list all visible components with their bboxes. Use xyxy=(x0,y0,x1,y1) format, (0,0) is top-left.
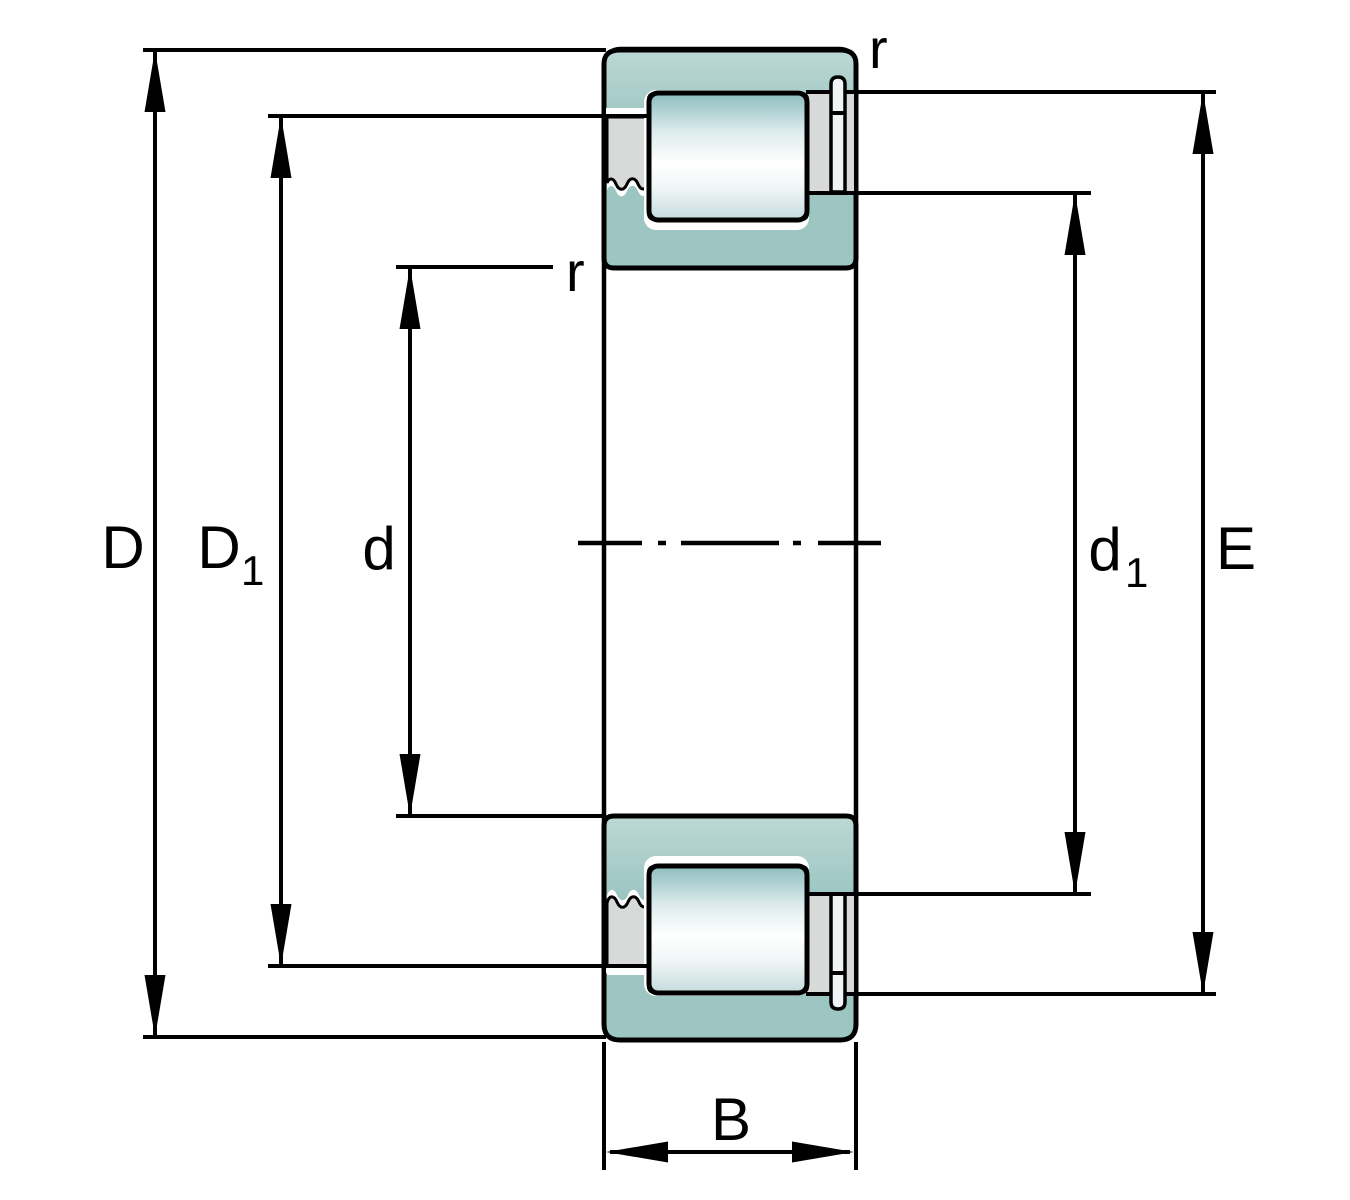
arrowhead-B-left xyxy=(606,1142,668,1163)
arrowhead-d-up xyxy=(400,267,421,329)
arrowhead-E-down xyxy=(1193,932,1214,994)
arrowhead-D-down xyxy=(145,975,166,1037)
snap-ring-pin-bottom xyxy=(831,894,845,1009)
inner-ring-flange-break-bottom xyxy=(607,897,649,966)
dimension-label-E: E xyxy=(1216,515,1256,582)
dimension-E xyxy=(1193,92,1214,994)
dimension-label-D1: D xyxy=(197,514,240,581)
arrowhead-d-down xyxy=(400,754,421,816)
dimension-label-d: d xyxy=(362,515,395,582)
dimension-label-D1-sub: 1 xyxy=(241,547,264,594)
dimension-label-d1-sub: 1 xyxy=(1125,549,1148,596)
drawing-canvas: D D 1 d r r B d 1 E xyxy=(0,0,1350,1200)
dimension-label-D: D xyxy=(101,514,144,581)
outer-ring-bottom-section xyxy=(604,816,1216,1040)
inner-ring-flange-break-top xyxy=(607,117,649,189)
fillet-radius-label-outer: r xyxy=(869,17,888,80)
bearing-dimension-drawing: D D 1 d r r B d 1 E xyxy=(0,0,1350,1200)
dimension-d xyxy=(396,267,606,816)
arrowhead-d1-up xyxy=(1065,193,1086,255)
dimension-label-d1: d xyxy=(1088,516,1121,583)
fillet-radius-label-inner: r xyxy=(566,240,585,303)
dimension-label-B: B xyxy=(711,1086,751,1153)
arrowhead-d1-down xyxy=(1065,832,1086,894)
cylindrical-roller-bottom xyxy=(649,866,807,993)
arrowhead-D1-down xyxy=(271,904,292,966)
arrowhead-B-right xyxy=(792,1142,854,1163)
snap-ring-pin-top xyxy=(831,77,845,192)
outer-ring-top-section xyxy=(604,50,1216,268)
cylindrical-roller-top xyxy=(649,93,807,220)
arrowhead-D-up xyxy=(145,50,166,112)
dimension-d1 xyxy=(1065,193,1086,894)
arrowhead-E-up xyxy=(1193,92,1214,154)
arrowhead-D1-up xyxy=(271,116,292,178)
